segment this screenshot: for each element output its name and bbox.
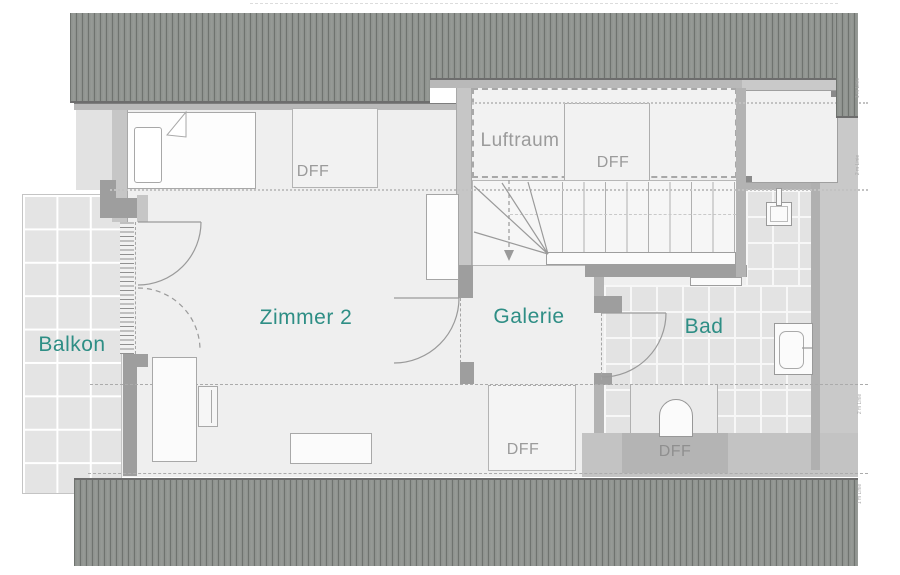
height-caption-2m-top: 2 m Linie [855,155,861,175]
wall-jog [116,198,137,218]
height-line-2m-bottom [90,384,868,385]
balcony-door-closed-line [135,222,136,354]
roof-hatch-top [70,13,836,80]
height-caption-1m-bottom: 1 m Linie [857,484,863,504]
balcony-label: Balkon [38,333,105,357]
height-line-1m-bottom [88,473,868,474]
left-wall-lower [123,354,137,476]
table [290,433,372,464]
bad-label: Bad [685,315,724,339]
zimmer2-door-closed-line [460,298,461,363]
washbasin-bowl [779,331,804,369]
stair-bottom-wall [585,265,747,277]
top-wall-left [74,103,458,110]
chair-backrest [211,390,217,423]
galerie-label: Galerie [493,305,564,329]
roof-hatch-top-corner [836,13,858,118]
height-caption-1m-top: 1 m Linie [855,78,861,98]
roof-hatch-bottom [74,478,858,566]
roof-eave-edge [430,78,836,80]
bath-left-wall [594,379,604,433]
zimmer2-label: Zimmer 2 [260,306,353,330]
height-line-2m-top [110,189,868,191]
dff-label-galerie: DFF [507,441,540,459]
bath-door-pier [594,296,622,313]
roof-window-luftraum [564,103,650,190]
luftraum-label: Luftraum [481,130,560,152]
wall-jog [100,180,116,218]
left-wall-lower-step [137,354,148,367]
door-pier [458,265,473,298]
door-pier [460,362,474,384]
toilet [659,399,693,437]
floor-plan: Balkon Zimmer 2 Galerie Bad Luftraum DFF… [0,0,900,575]
left-wall-segment [137,195,148,222]
dff-label-bad: DFF [659,443,692,461]
stair-headroom-line [510,214,736,215]
radiator-shelf [690,277,742,286]
dff-label-luftraum: DFF [597,154,630,172]
desk [152,357,197,462]
stair-landing [546,252,736,265]
sink-pipe [776,188,782,206]
wall-notch [430,88,456,103]
roof-hatch-top-left [70,80,430,103]
bath-sink-basin [770,206,788,222]
dff-label-zimmer2: DFF [297,163,330,181]
bath-door-closed-line [601,313,602,380]
height-line-1m-top [472,102,868,104]
height-caption-2m-bottom: 2 m Linie [857,394,863,414]
cupboard [426,194,459,280]
corner-mark [746,176,752,182]
ridge-dotted-line [250,3,838,4]
balcony-door-threshold [120,222,134,354]
left-eave-strip [76,103,112,190]
stair-risers [562,182,737,252]
bed-pillow [134,127,162,183]
stair-right-wall [736,88,746,277]
